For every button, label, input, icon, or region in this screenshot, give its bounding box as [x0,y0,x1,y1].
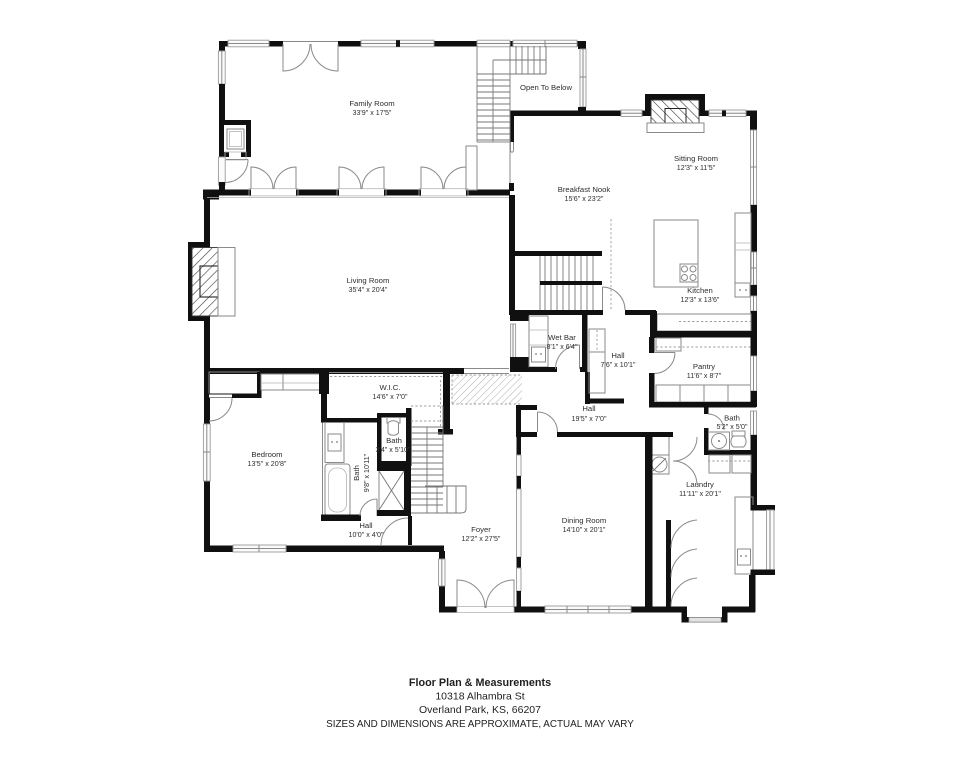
svg-text:Laundry: Laundry [686,480,714,489]
svg-text:Bath: Bath [724,414,740,423]
svg-text:Wet Bar: Wet Bar [548,333,576,342]
svg-text:SIZES AND DIMENSIONS ARE APPRO: SIZES AND DIMENSIONS ARE APPROXIMATE, AC… [326,719,634,730]
svg-text:Pantry: Pantry [693,362,715,371]
svg-text:Hall: Hall [582,404,596,413]
svg-text:19'5" x 7'0": 19'5" x 7'0" [572,415,607,423]
svg-text:35'4" x 20'4": 35'4" x 20'4" [349,286,388,294]
svg-text:Bath: Bath [352,465,361,481]
svg-text:Sitting Room: Sitting Room [674,154,718,163]
svg-text:14'6" x 7'0": 14'6" x 7'0" [373,393,408,401]
svg-text:9'8" x 10'11": 9'8" x 10'11" [363,453,371,492]
svg-text:Overland Park, KS, 66207: Overland Park, KS, 66207 [419,704,541,716]
svg-text:12'2" x 27'5": 12'2" x 27'5" [462,535,501,543]
svg-text:8'1" x 6'4": 8'1" x 6'4" [546,343,577,351]
svg-text:12'3" x 13'6": 12'3" x 13'6" [681,296,720,304]
svg-text:10'0" x 4'0": 10'0" x 4'0" [349,531,384,539]
svg-text:15'6" x 23'2": 15'6" x 23'2" [565,195,604,203]
svg-text:5'2" x 5'0": 5'2" x 5'0" [716,423,747,431]
svg-text:Hall: Hall [359,521,373,530]
svg-text:33'9" x 17'5": 33'9" x 17'5" [353,109,392,117]
svg-text:Family Room: Family Room [349,99,394,108]
svg-text:Bath: Bath [386,436,402,445]
svg-text:Open To Below: Open To Below [520,83,572,92]
svg-text:11'11" x 20'1": 11'11" x 20'1" [679,490,721,498]
svg-text:Breakfast Nook: Breakfast Nook [558,185,611,194]
svg-text:Foyer: Foyer [471,525,491,534]
svg-text:W.I.C.: W.I.C. [380,383,401,392]
svg-text:Hall: Hall [611,351,625,360]
svg-text:11'6" x 8'7": 11'6" x 8'7" [687,372,722,380]
svg-text:14'10" x 20'1": 14'10" x 20'1" [563,526,606,534]
svg-text:Kitchen: Kitchen [687,286,713,295]
svg-text:7'6" x 10'1": 7'6" x 10'1" [601,361,636,369]
svg-text:Living Room: Living Room [347,276,390,285]
svg-text:Bedroom: Bedroom [251,450,282,459]
svg-text:Floor Plan & Measurements: Floor Plan & Measurements [409,677,551,689]
svg-text:Dining Room: Dining Room [562,516,606,525]
svg-text:10318 Alhambra St: 10318 Alhambra St [435,691,524,703]
svg-text:12'3" x 11'5": 12'3" x 11'5" [677,164,716,172]
svg-text:13'5" x 20'8": 13'5" x 20'8" [248,460,287,468]
svg-text:3'4" x 5'10": 3'4" x 5'10" [376,446,411,454]
